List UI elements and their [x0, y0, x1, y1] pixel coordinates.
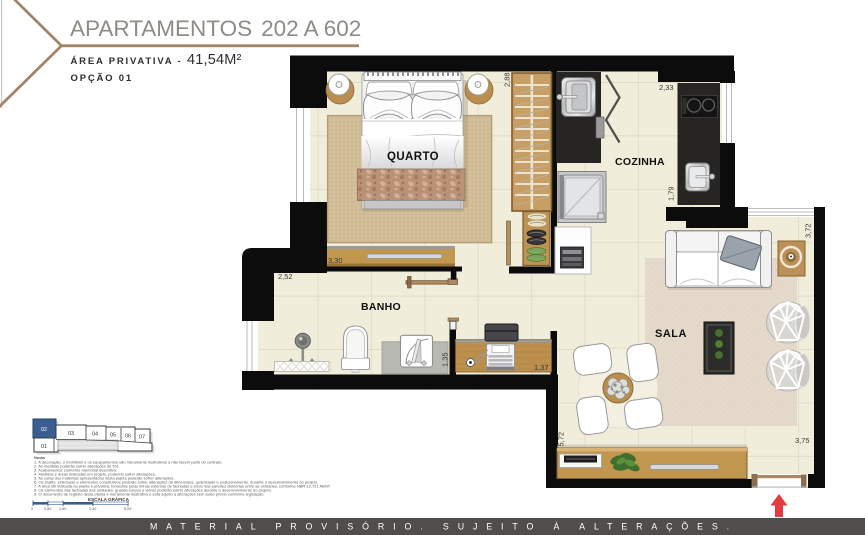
- svg-text:APARTAMENTOS202 A 602: APARTAMENTOS202 A 602: [70, 16, 361, 41]
- svg-text:01: 01: [41, 444, 47, 450]
- svg-text:2,33: 2,33: [659, 83, 674, 92]
- svg-text:3,75: 3,75: [795, 436, 810, 445]
- svg-text:02: 02: [41, 427, 47, 433]
- svg-text:OPÇÃO 01: OPÇÃO 01: [71, 73, 133, 84]
- svg-text:BANHO: BANHO: [361, 301, 401, 313]
- svg-text:07: 07: [139, 435, 145, 441]
- svg-text:1,37: 1,37: [534, 363, 549, 372]
- svg-text:3,72: 3,72: [804, 223, 813, 238]
- svg-text:1,35: 1,35: [441, 352, 450, 367]
- svg-text:1,79: 1,79: [667, 186, 676, 201]
- svg-text:04: 04: [92, 432, 98, 438]
- svg-text:MATERIAL PROVISÓRIO. SUJEITO À: MATERIAL PROVISÓRIO. SUJEITO À ALTERAÇÕE…: [150, 522, 738, 532]
- svg-text:0: 0: [31, 507, 33, 511]
- svg-text:6,00: 6,00: [124, 507, 131, 511]
- svg-text:QUARTO: QUARTO: [387, 151, 439, 163]
- svg-text:9. O documento de registro des: 9. O documento de registro desta planta …: [34, 492, 265, 497]
- svg-text:ESCALA GRÁFICA: ESCALA GRÁFICA: [88, 496, 130, 502]
- svg-text:0,80: 0,80: [44, 507, 51, 511]
- svg-text:06: 06: [125, 434, 131, 440]
- svg-text:2,88: 2,88: [503, 72, 512, 87]
- svg-text:COZINHA: COZINHA: [615, 156, 665, 168]
- svg-text:1,60: 1,60: [59, 507, 66, 511]
- svg-text:SALA: SALA: [655, 328, 687, 340]
- svg-text:03: 03: [68, 431, 74, 437]
- svg-text:5,72: 5,72: [557, 432, 566, 447]
- svg-text:2,52: 2,52: [278, 272, 293, 281]
- svg-text:3,30: 3,30: [328, 256, 343, 265]
- svg-text:05: 05: [110, 433, 116, 439]
- svg-text:2,40: 2,40: [89, 507, 96, 511]
